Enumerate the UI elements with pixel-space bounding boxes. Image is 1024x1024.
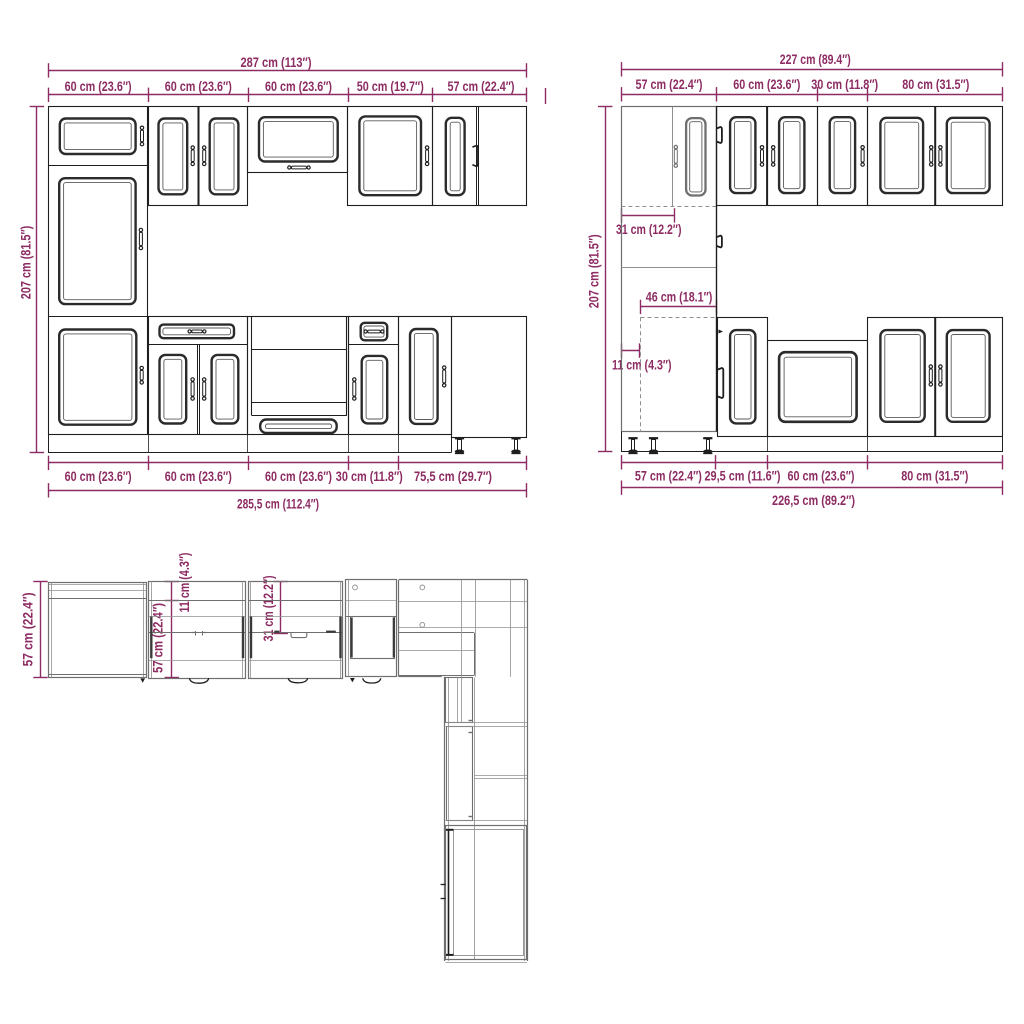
svg-text:60 cm (23.6″): 60 cm (23.6″) <box>788 468 855 484</box>
svg-text:207 cm (81.5″): 207 cm (81.5″) <box>18 226 34 300</box>
svg-text:60 cm (23.6″): 60 cm (23.6″) <box>265 468 332 484</box>
svg-text:50 cm (19.7″): 50 cm (19.7″) <box>357 78 424 94</box>
svg-text:57 cm (22.4″): 57 cm (22.4″) <box>20 592 36 666</box>
svg-text:227 cm (89.4″): 227 cm (89.4″) <box>780 51 851 67</box>
svg-text:207 cm (81.5″): 207 cm (81.5″) <box>585 234 601 308</box>
svg-text:60 cm (23.6″): 60 cm (23.6″) <box>733 76 800 92</box>
svg-text:29,5 cm (11.6″): 29,5 cm (11.6″) <box>705 468 781 484</box>
svg-text:287 cm (113″): 287 cm (113″) <box>241 54 312 70</box>
svg-text:46 cm (18.1″): 46 cm (18.1″) <box>646 289 713 305</box>
svg-text:60 cm (23.6″): 60 cm (23.6″) <box>165 78 232 94</box>
svg-text:30 cm (11.8″): 30 cm (11.8″) <box>336 468 403 484</box>
svg-text:226,5 cm (89.2″): 226,5 cm (89.2″) <box>772 492 855 508</box>
svg-text:11 cm (4.3″): 11 cm (4.3″) <box>176 553 192 613</box>
svg-text:57 cm (22.4″): 57 cm (22.4″) <box>636 76 703 92</box>
svg-text:31 cm (12.2″): 31 cm (12.2″) <box>616 221 682 237</box>
svg-text:60 cm (23.6″): 60 cm (23.6″) <box>165 468 232 484</box>
svg-text:60 cm (23.6″): 60 cm (23.6″) <box>65 78 132 94</box>
svg-text:57 cm (22.4″): 57 cm (22.4″) <box>448 78 515 94</box>
svg-text:60 cm (23.6″): 60 cm (23.6″) <box>265 78 332 94</box>
svg-text:80 cm (31.5″): 80 cm (31.5″) <box>902 76 969 92</box>
svg-text:30 cm (11.8″): 30 cm (11.8″) <box>811 76 878 92</box>
svg-text:57 cm (22.4″): 57 cm (22.4″) <box>635 468 702 484</box>
svg-text:75,5 cm (29.7″): 75,5 cm (29.7″) <box>414 468 492 484</box>
svg-text:285,5 cm (112.4″): 285,5 cm (112.4″) <box>237 495 319 511</box>
svg-text:60 cm (23.6″): 60 cm (23.6″) <box>65 468 132 484</box>
svg-text:80 cm (31.5″): 80 cm (31.5″) <box>901 468 968 484</box>
svg-text:31 cm (12.2″): 31 cm (12.2″) <box>260 575 276 641</box>
